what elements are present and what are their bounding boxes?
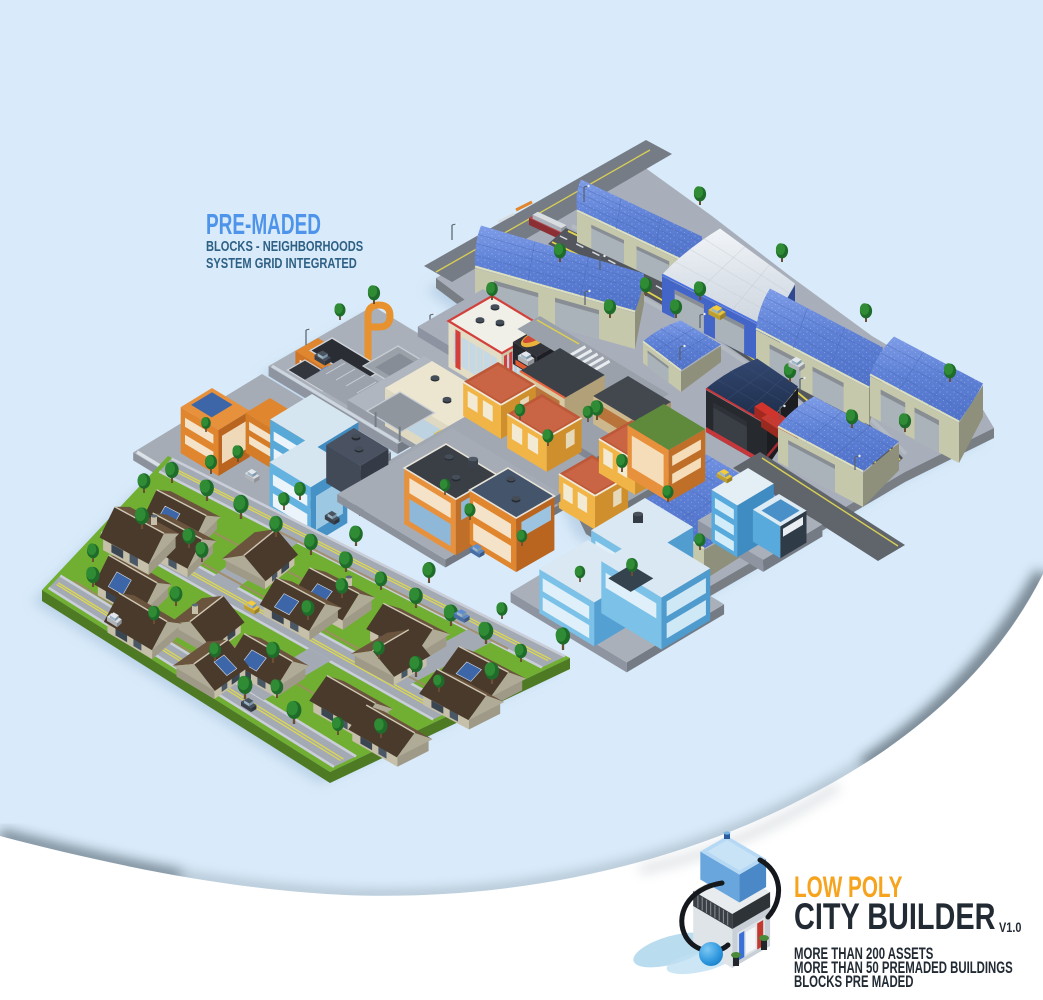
svg-text:BLOCKS PRE MADED: BLOCKS PRE MADED [794, 973, 913, 992]
svg-text:PRE-MADED: PRE-MADED [206, 209, 321, 241]
svg-text:V1.0: V1.0 [999, 920, 1021, 936]
svg-text:BLOCKS - NEIGHBORHOODS: BLOCKS - NEIGHBORHOODS [206, 237, 363, 254]
svg-text:SYSTEM GRID INTEGRATED: SYSTEM GRID INTEGRATED [206, 254, 357, 271]
svg-text:CITY BUILDER: CITY BUILDER [794, 897, 995, 938]
